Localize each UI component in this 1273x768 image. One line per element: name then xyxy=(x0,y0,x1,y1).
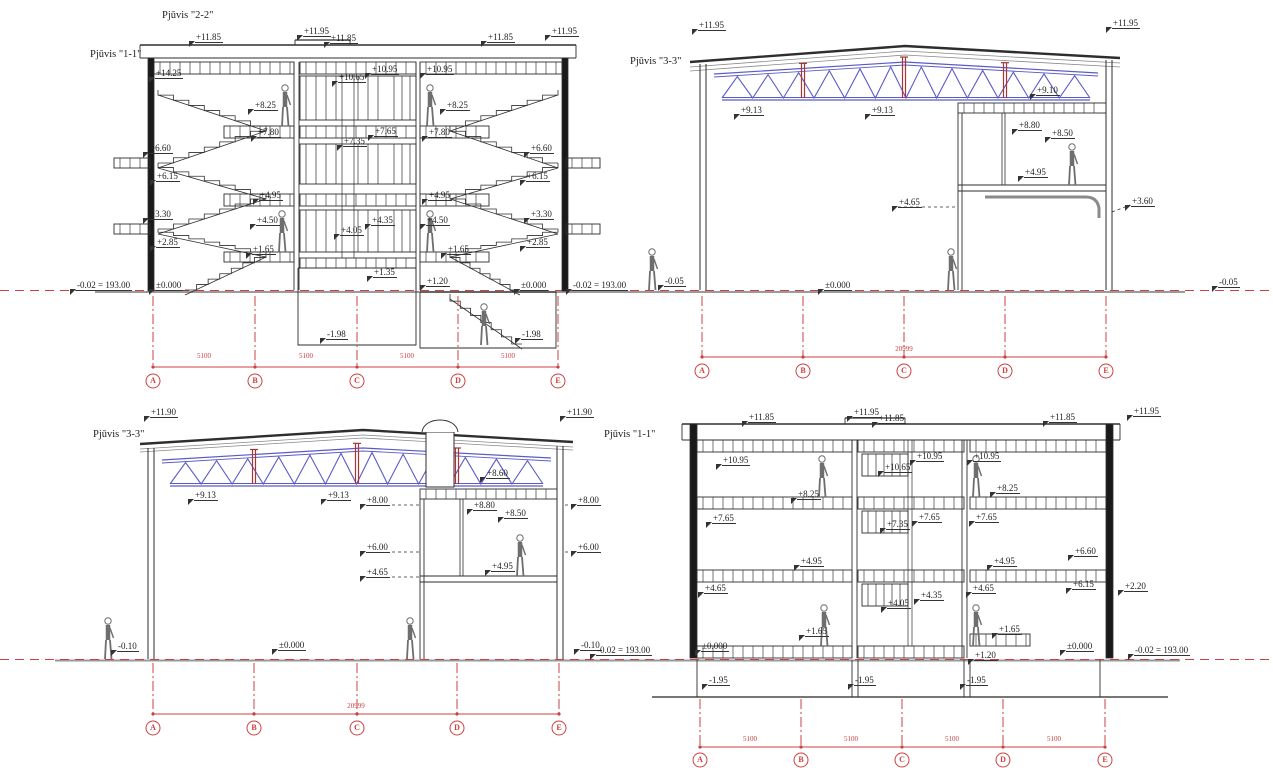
elevation-label: -1.95 xyxy=(966,675,988,686)
elevation-label: +7.65 xyxy=(975,512,999,523)
elevation-label: -1.98 xyxy=(521,329,543,340)
elevation-label: +6.60 xyxy=(1074,546,1098,557)
elevation-label: +7.80 xyxy=(428,127,452,138)
elevation-label: +4.65 xyxy=(898,197,922,208)
elevation-label: +4.05 xyxy=(340,225,364,236)
elevation-label: +4.95 xyxy=(259,190,283,201)
grid-axis-bubble-label: D xyxy=(998,366,1012,375)
elevation-label: +9.13 xyxy=(871,105,895,116)
elevation-label: +8.00 xyxy=(577,495,601,506)
elevation-label: +10.65 xyxy=(884,462,912,473)
section-title: Pjūvis "1-1" xyxy=(90,49,141,60)
elevation-label: +4.35 xyxy=(920,590,944,601)
section-title: Pjūvis "3-3" xyxy=(630,56,681,67)
elevation-label: +2.20 xyxy=(1124,581,1148,592)
elevation-label: +14.25 xyxy=(155,68,183,79)
total-dimension-label: 20999 xyxy=(895,345,913,353)
elevation-label: +3.30 xyxy=(530,209,554,220)
elevation-label: +10.95 xyxy=(722,455,750,466)
elevation-label: +1.65 xyxy=(447,244,471,255)
elevation-label: +11.85 xyxy=(878,413,906,424)
elevation-label: ±0.000 xyxy=(155,280,183,291)
elevation-label: +9.10 xyxy=(1036,85,1060,96)
elevation-label: +1.20 xyxy=(974,650,998,661)
grid-axis-bubble-label: C xyxy=(350,723,364,732)
elevation-label: +10.65 xyxy=(338,72,366,83)
elevation-label: +4.95 xyxy=(1024,167,1048,178)
elevation-label: -0.05 xyxy=(1218,277,1240,288)
elevation-label: ±0.000 xyxy=(701,641,729,652)
elevation-label: +8.00 xyxy=(366,495,390,506)
elevation-label: +11.90 xyxy=(566,407,594,418)
elevation-label: +11.95 xyxy=(698,20,726,31)
elevation-label: +6.00 xyxy=(366,542,390,553)
elevation-label: +6.60 xyxy=(149,143,173,154)
elevation-label: -1.98 xyxy=(326,329,348,340)
elevation-label: +11.85 xyxy=(330,33,358,44)
elevation-label: -0.02 = 193.00 xyxy=(1134,645,1190,656)
elevation-label: +10.95 xyxy=(371,64,399,75)
bay-dimension-label: 5100 xyxy=(1047,735,1061,743)
elevation-label: +7.65 xyxy=(712,513,736,524)
bay-dimension-label: 5100 xyxy=(743,735,757,743)
grid-axis-bubble-label: C xyxy=(350,376,364,385)
ground-lines xyxy=(0,291,1273,661)
grid-axis-bubble-label: A xyxy=(695,366,709,375)
drawing-sheet: +11.85+11.95+11.85+11.85+11.95+14.25+10.… xyxy=(0,0,1273,768)
elevation-label: -0.02 = 193.00 xyxy=(76,280,132,291)
elevation-label: +11.85 xyxy=(195,32,223,43)
grid-axis-bubble-label: B xyxy=(794,755,808,764)
elevation-label: +4.65 xyxy=(366,567,390,578)
elevation-label: +4.95 xyxy=(800,556,824,567)
elevation-label: +1.65 xyxy=(998,624,1022,635)
grid-axis-bubble-label: A xyxy=(146,723,160,732)
elevation-label: +11.95 xyxy=(1133,406,1161,417)
elevation-label: +9.13 xyxy=(194,490,218,501)
bay-dimension-label: 5100 xyxy=(945,735,959,743)
elevation-label: +11.95 xyxy=(551,26,579,37)
elevation-label: +1.35 xyxy=(373,267,397,278)
grid-axis-bubble-label: C xyxy=(895,755,909,764)
elevation-label: +6.15 xyxy=(526,171,550,182)
grid-axis-bubble-label: D xyxy=(450,723,464,732)
elevation-label: +4.50 xyxy=(426,215,450,226)
grid-axis-bubble-label: E xyxy=(552,723,566,732)
elevation-label: +7.35 xyxy=(343,136,367,147)
total-dimension-label: 20999 xyxy=(347,702,365,710)
elevation-label: +11.85 xyxy=(487,32,515,43)
elevation-label: +4.95 xyxy=(993,556,1017,567)
elevation-label: +3.60 xyxy=(1131,196,1155,207)
elevation-label: +2.85 xyxy=(156,237,180,248)
grid-axis-bubble-label: D xyxy=(451,376,465,385)
bay-dimension-label: 5100 xyxy=(501,352,515,360)
elevation-label: +7.65 xyxy=(918,512,942,523)
elevation-label: +6.15 xyxy=(1072,579,1096,590)
elevation-label: +1.20 xyxy=(426,276,450,287)
elevation-label: +6.60 xyxy=(530,143,554,154)
elevation-label: -1.95 xyxy=(708,675,730,686)
elevation-label: +8.50 xyxy=(1051,128,1075,139)
elevation-label: +4.95 xyxy=(491,561,515,572)
elevation-label: +4.05 xyxy=(887,598,911,609)
elevation-label: +11.85 xyxy=(748,412,776,423)
elevation-label: -0.02 = 193.00 xyxy=(572,280,628,291)
elevation-label: +11.85 xyxy=(1049,412,1077,423)
elevation-label: +10.95 xyxy=(916,451,944,462)
elevation-label: +8.25 xyxy=(797,489,821,500)
elevation-label: ±0.000 xyxy=(278,640,306,651)
elevation-label: +4.50 xyxy=(256,215,280,226)
section-title: Pjūvis "3-3" xyxy=(93,429,144,440)
grid-axis-bubble-label: E xyxy=(551,376,565,385)
grid-axis-bubble-label: C xyxy=(897,366,911,375)
grid-axis-bubble-label: B xyxy=(248,376,262,385)
elevation-label: -1.95 xyxy=(854,675,876,686)
section-title: Pjūvis "1-1" xyxy=(604,429,655,440)
bay-dimension-label: 5100 xyxy=(197,352,211,360)
elevation-label: +3.30 xyxy=(149,209,173,220)
bay-dimension-label: 5100 xyxy=(400,352,414,360)
elevation-label: +8.25 xyxy=(446,100,470,111)
section-title: Pjūvis "2-2" xyxy=(162,10,213,21)
elevation-label: +8.80 xyxy=(473,500,497,511)
bay-dimension-label: 5100 xyxy=(844,735,858,743)
grid-axis-bubble-label: D xyxy=(996,755,1010,764)
elevation-label: ±0.000 xyxy=(824,280,852,291)
elevation-label: +11.95 xyxy=(853,407,881,418)
elevation-label: +11.95 xyxy=(303,26,331,37)
elevation-label: +8.25 xyxy=(254,100,278,111)
grid-axis-bubble-label: B xyxy=(796,366,810,375)
grid-axis-bubble-label: E xyxy=(1098,755,1112,764)
elevation-label: +4.35 xyxy=(371,215,395,226)
elevation-label: ±0.000 xyxy=(1066,641,1094,652)
elevation-label: +4.95 xyxy=(428,190,452,201)
elevation-label: +4.65 xyxy=(704,583,728,594)
elevation-label: +6.00 xyxy=(577,542,601,553)
bay-dimension-label: 5100 xyxy=(299,352,313,360)
grid-axis-bubble-label: A xyxy=(146,376,160,385)
elevation-label: +7.65 xyxy=(374,126,398,137)
elevation-label: +11.90 xyxy=(150,407,178,418)
elevation-label: -0.05 xyxy=(664,276,686,287)
elevation-label: +2.85 xyxy=(526,237,550,248)
elevation-label: +7.80 xyxy=(257,127,281,138)
elevation-label: +1.65 xyxy=(805,626,829,637)
elevation-label: -0.02 = 193.00 xyxy=(596,645,652,656)
elevation-label: +11.95 xyxy=(1112,18,1140,29)
grid-axis-bubble-label: E xyxy=(1099,366,1113,375)
elevation-label: +8.50 xyxy=(504,508,528,519)
elevation-label: +9.13 xyxy=(740,105,764,116)
elevation-label: +4.65 xyxy=(972,583,996,594)
elevation-label: +7.35 xyxy=(886,519,910,530)
grid-axis-bubble-label: B xyxy=(247,723,261,732)
elevation-label: +1.65 xyxy=(252,244,276,255)
elevation-label: +6.15 xyxy=(156,171,180,182)
elevation-label: +8.25 xyxy=(996,483,1020,494)
elevation-label: +8.60 xyxy=(486,468,510,479)
elevation-label: ±0.000 xyxy=(520,280,548,291)
elevation-label: -0.10 xyxy=(117,641,139,652)
elevation-label: +9.13 xyxy=(327,490,351,501)
elevation-label: +10.95 xyxy=(973,451,1001,462)
grid-axis-bubble-label: A xyxy=(693,755,707,764)
elevation-label: +10.95 xyxy=(426,64,454,75)
elevation-label: +8.80 xyxy=(1018,120,1042,131)
